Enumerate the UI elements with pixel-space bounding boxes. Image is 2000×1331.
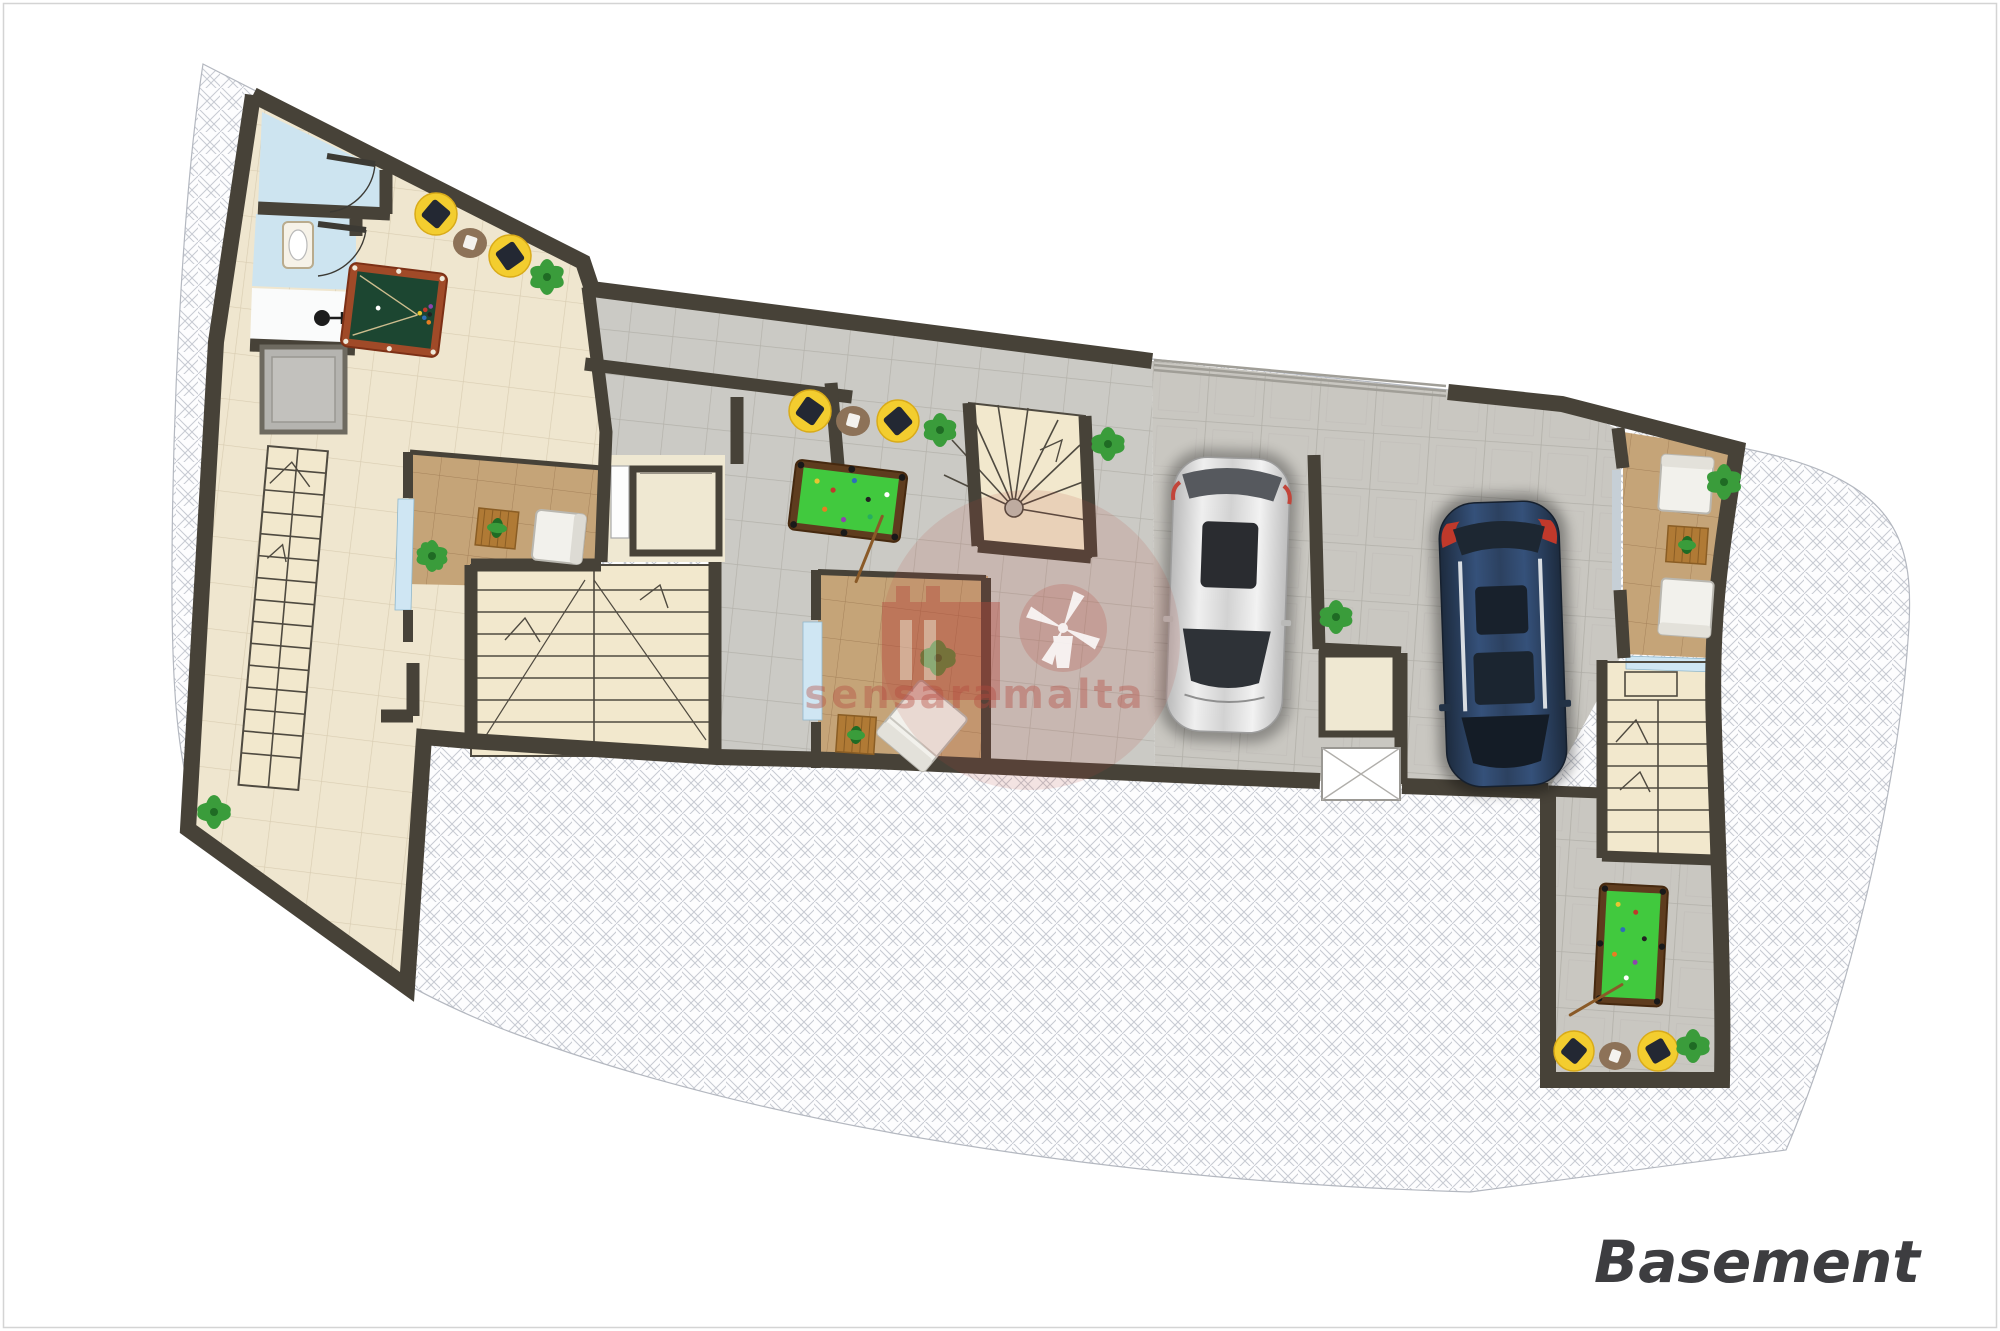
u-stair-floor [471, 565, 715, 756]
light-well-icon [1322, 748, 1400, 800]
beanbag-icon [1554, 1031, 1594, 1071]
sofa-icon [1658, 578, 1714, 637]
car-silver-icon [1157, 448, 1299, 744]
sofa-icon [1658, 454, 1714, 513]
armchair-icon [532, 510, 587, 565]
window-right-band [1626, 656, 1716, 672]
window-left-lounge [395, 499, 414, 610]
shaft-icon [262, 347, 345, 432]
coffee-table-icon [1666, 526, 1708, 565]
beanbag-icon [1638, 1031, 1678, 1071]
coffee-table-icon [475, 508, 519, 549]
car-blue-icon [1430, 492, 1576, 797]
windmill-watermark-icon [1019, 584, 1107, 672]
elevator-icon [633, 469, 719, 553]
pool-table-dark-icon [340, 262, 448, 357]
coffee-table-icon [836, 715, 876, 755]
beanbag-icon [415, 193, 457, 235]
floor-plan-drawing: sensaramalta Basement [0, 0, 2000, 1331]
garage-elevator-icon [1322, 654, 1396, 734]
round-rug-icon [836, 406, 870, 436]
round-rug-icon [1599, 1042, 1631, 1070]
beanbag-icon [877, 400, 919, 442]
watermark-text: sensaramalta [804, 672, 1145, 718]
floor-label: Basement [1594, 1228, 1922, 1296]
floor-plan-page: sensaramalta Basement [0, 0, 2000, 1331]
door-strip-hallway [611, 466, 629, 538]
round-rug-icon [453, 228, 487, 258]
window-sitting-west [1612, 470, 1621, 590]
beanbag-icon [789, 390, 831, 432]
sink-icon [283, 222, 313, 268]
beanbag-icon [489, 235, 531, 277]
